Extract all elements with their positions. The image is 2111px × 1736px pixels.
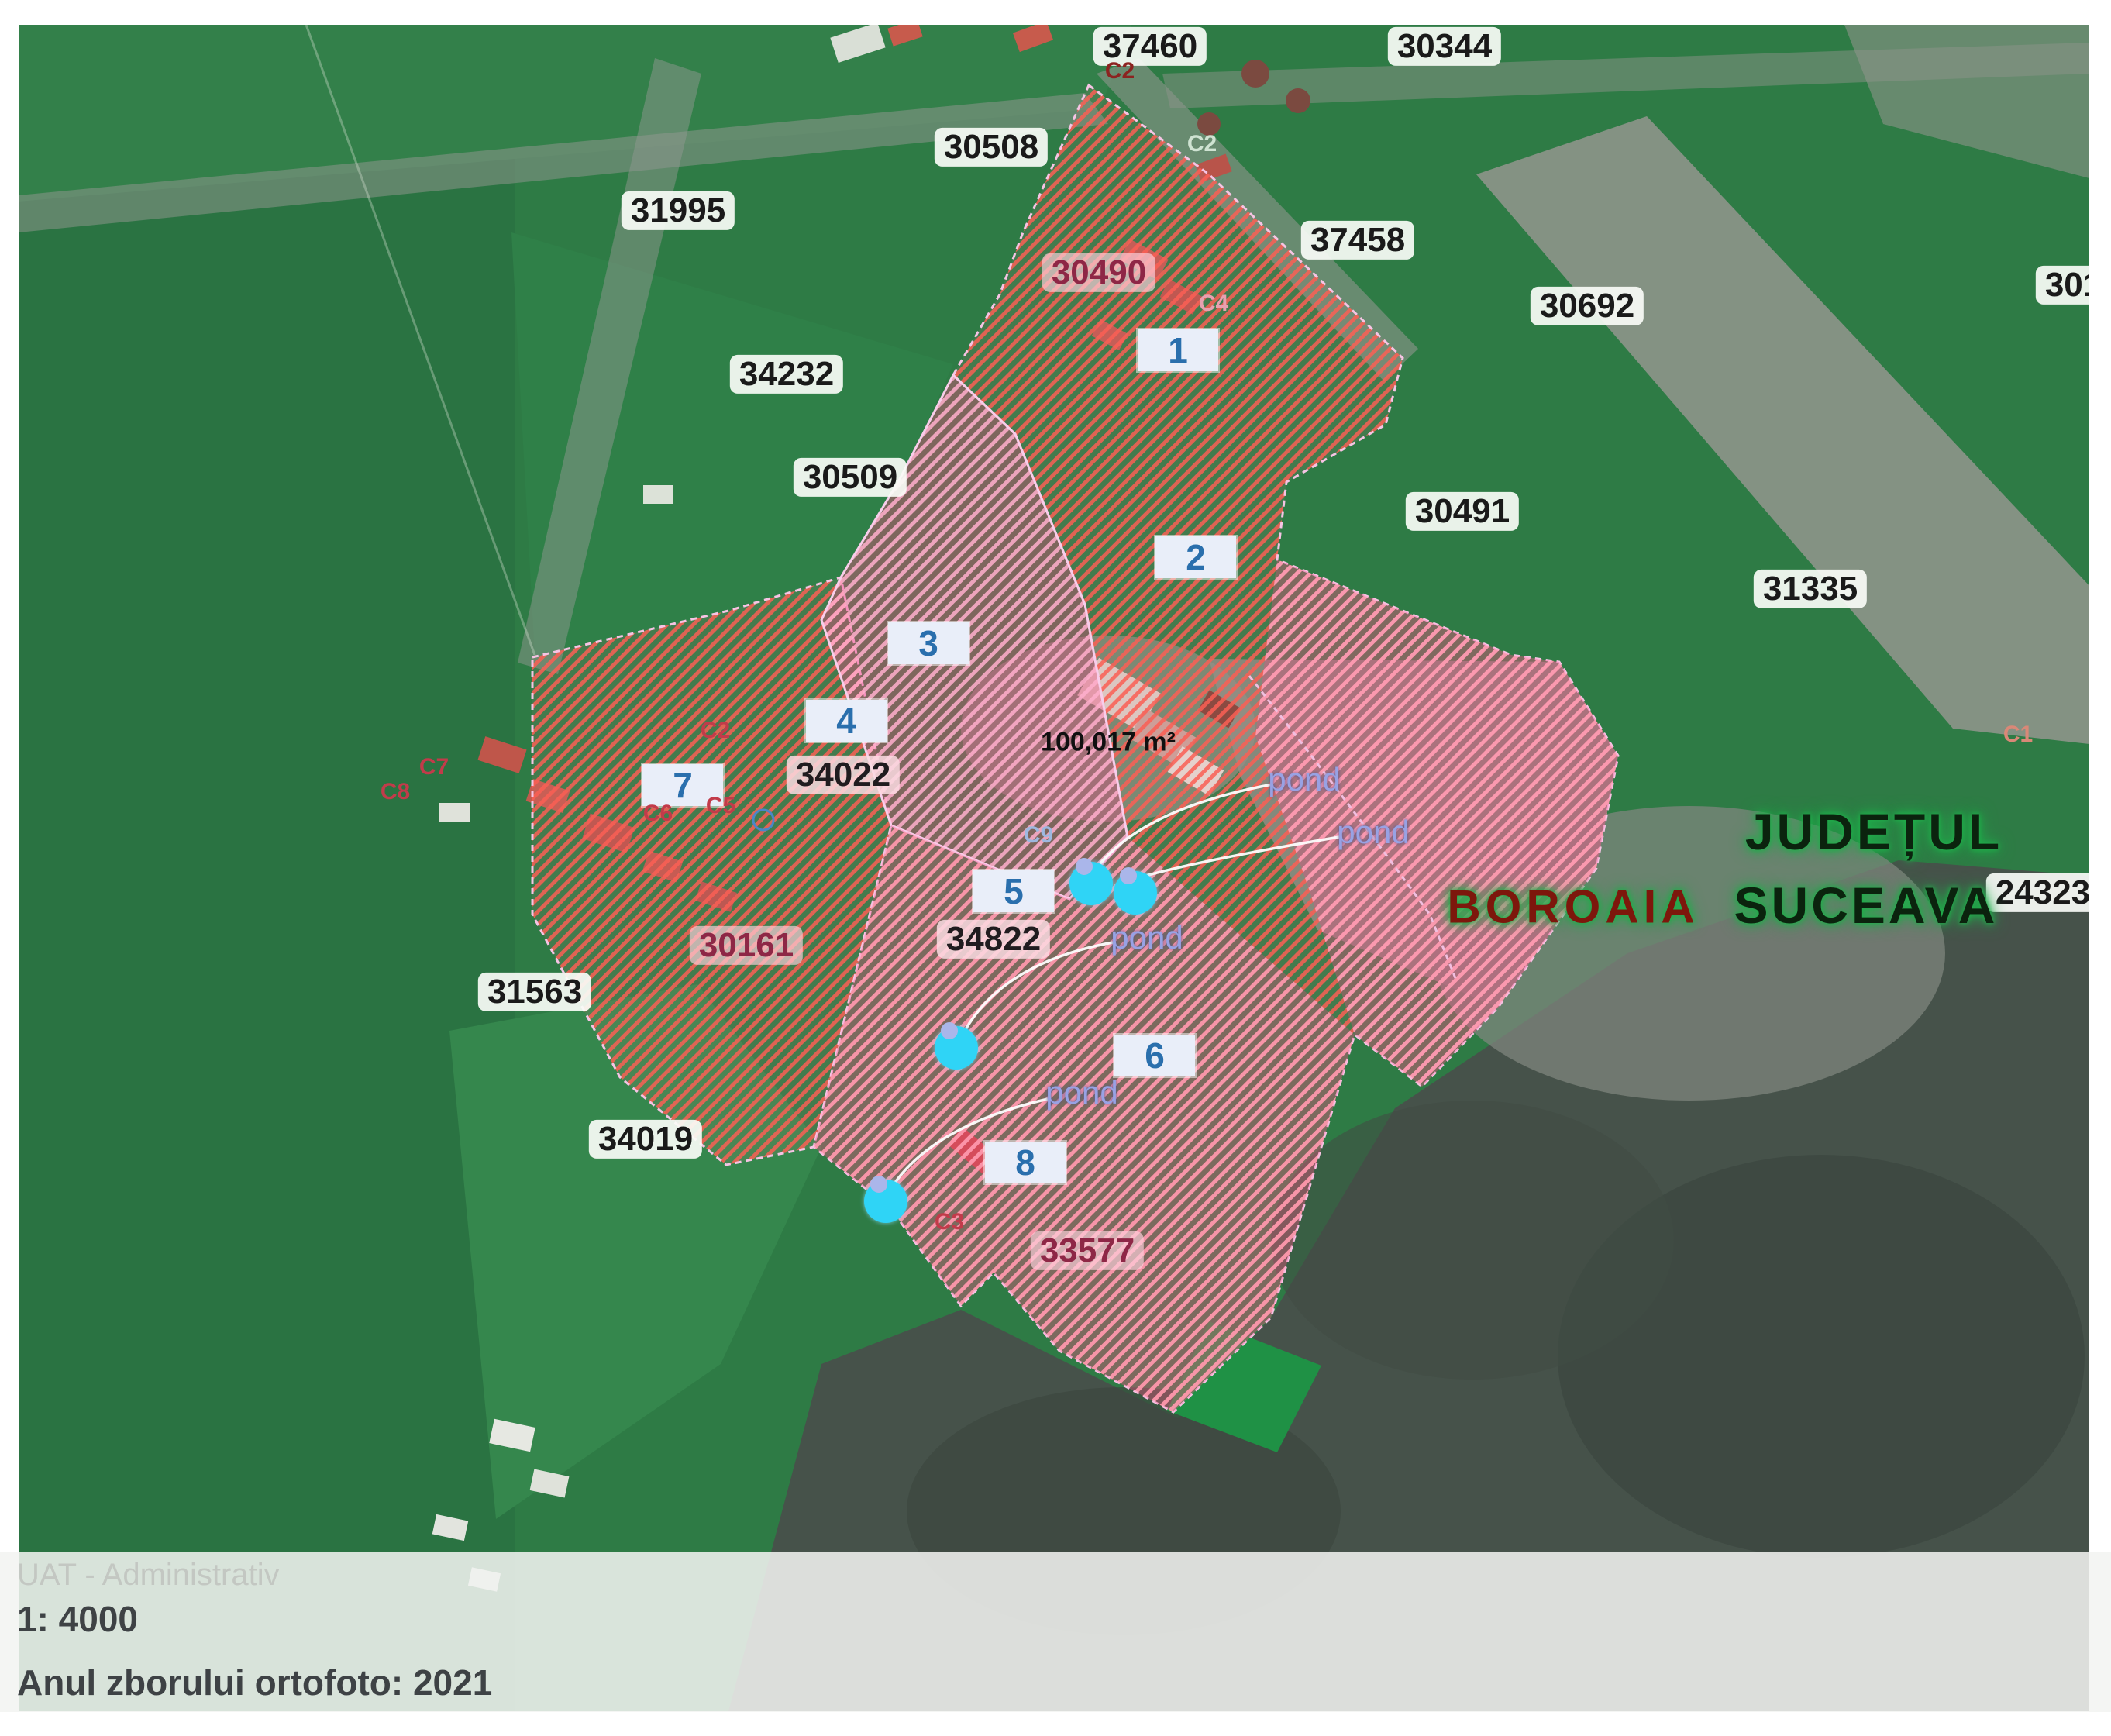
parcel-label-30509: 30509 bbox=[794, 458, 907, 497]
scale-label: 1: 4000 bbox=[17, 1598, 138, 1640]
pond-marker-4[interactable] bbox=[864, 1180, 907, 1223]
construction-label-C6: C6 bbox=[643, 801, 673, 827]
parcel-label-31995: 31995 bbox=[622, 191, 735, 230]
construction-label-C8: C8 bbox=[381, 779, 410, 805]
pond-marker-dot bbox=[941, 1022, 958, 1039]
layer-label: UAT - Administrativ bbox=[17, 1558, 280, 1593]
flight-year-label: Anul zborului ortofoto: 2021 bbox=[17, 1662, 492, 1703]
map-viewport[interactable]: 3746030344305083199537458301223069234232… bbox=[19, 25, 2089, 1711]
zone-badge-8[interactable]: 8 bbox=[985, 1142, 1066, 1183]
parcel-label-30692: 30692 bbox=[1531, 287, 1644, 325]
map-statusbar: UAT - Administrativ 1: 4000 Anul zborulu… bbox=[0, 1552, 2111, 1712]
zone-badge-5[interactable]: 5 bbox=[973, 870, 1054, 912]
pond-label-2: pond bbox=[1337, 814, 1409, 851]
parcel-label-31563: 31563 bbox=[478, 973, 591, 1011]
county-label-line1: JUDEȚUL bbox=[1745, 802, 2003, 861]
construction-label-C1: C1 bbox=[2003, 722, 2033, 748]
construction-label-C9: C9 bbox=[1024, 822, 1053, 849]
construction-label-C5: C5 bbox=[706, 793, 735, 819]
zone-badge-6[interactable]: 6 bbox=[1114, 1035, 1195, 1076]
parcel-label-30122: 30122 bbox=[2036, 266, 2089, 305]
parcel-label-24323: 24323 bbox=[1986, 873, 2089, 912]
parcel-label-31335: 31335 bbox=[1754, 570, 1867, 608]
pond-marker-dot bbox=[870, 1176, 887, 1193]
zone-badge-2[interactable]: 2 bbox=[1155, 536, 1236, 578]
parcel-label-30161: 30161 bbox=[690, 926, 803, 965]
parcel-label-34232: 34232 bbox=[730, 355, 843, 394]
pond-marker-dot bbox=[1120, 867, 1137, 884]
zone-badge-4[interactable]: 4 bbox=[806, 700, 887, 742]
zone-badge-1[interactable]: 1 bbox=[1138, 329, 1218, 371]
county-label-line2: SUCEAVA bbox=[1734, 876, 1999, 935]
parcel-label-34019: 34019 bbox=[589, 1120, 702, 1159]
zone-badge-3[interactable]: 3 bbox=[888, 622, 969, 664]
pond-marker-3[interactable] bbox=[935, 1026, 978, 1069]
construction-label-C3: C3 bbox=[935, 1209, 964, 1235]
pond-label-1: pond bbox=[1268, 761, 1340, 798]
map-annotations: 3746030344305083199537458301223069234232… bbox=[19, 25, 2089, 1711]
parcel-label-30344: 30344 bbox=[1388, 27, 1501, 66]
parcel-label-34822: 34822 bbox=[937, 920, 1050, 959]
parcel-label-30508: 30508 bbox=[935, 128, 1048, 167]
pond-marker-dot bbox=[1076, 858, 1093, 875]
pond-marker-2[interactable] bbox=[1114, 871, 1157, 914]
commune-label: BOROAIA bbox=[1447, 880, 1699, 934]
pond-marker-1[interactable] bbox=[1069, 862, 1113, 905]
construction-label-C4: C4 bbox=[1199, 291, 1228, 317]
construction-label-C7: C7 bbox=[419, 754, 449, 780]
app-window: 3746030344305083199537458301223069234232… bbox=[0, 0, 2111, 1736]
parcel-label-30491: 30491 bbox=[1406, 492, 1519, 531]
construction-label-C2: C2 bbox=[1105, 58, 1135, 84]
pond-label-4: pond bbox=[1045, 1074, 1117, 1111]
parcel-label-37458: 37458 bbox=[1301, 221, 1414, 260]
construction-label-C2: C2 bbox=[701, 718, 730, 744]
area-measurement-label: 100,017 m² bbox=[1041, 728, 1176, 758]
pond-label-3: pond bbox=[1111, 919, 1183, 956]
parcel-label-34022: 34022 bbox=[787, 756, 900, 794]
parcel-label-33577: 33577 bbox=[1031, 1231, 1144, 1270]
construction-label-C2: C2 bbox=[1187, 131, 1217, 157]
parcel-label-30490: 30490 bbox=[1042, 253, 1155, 292]
